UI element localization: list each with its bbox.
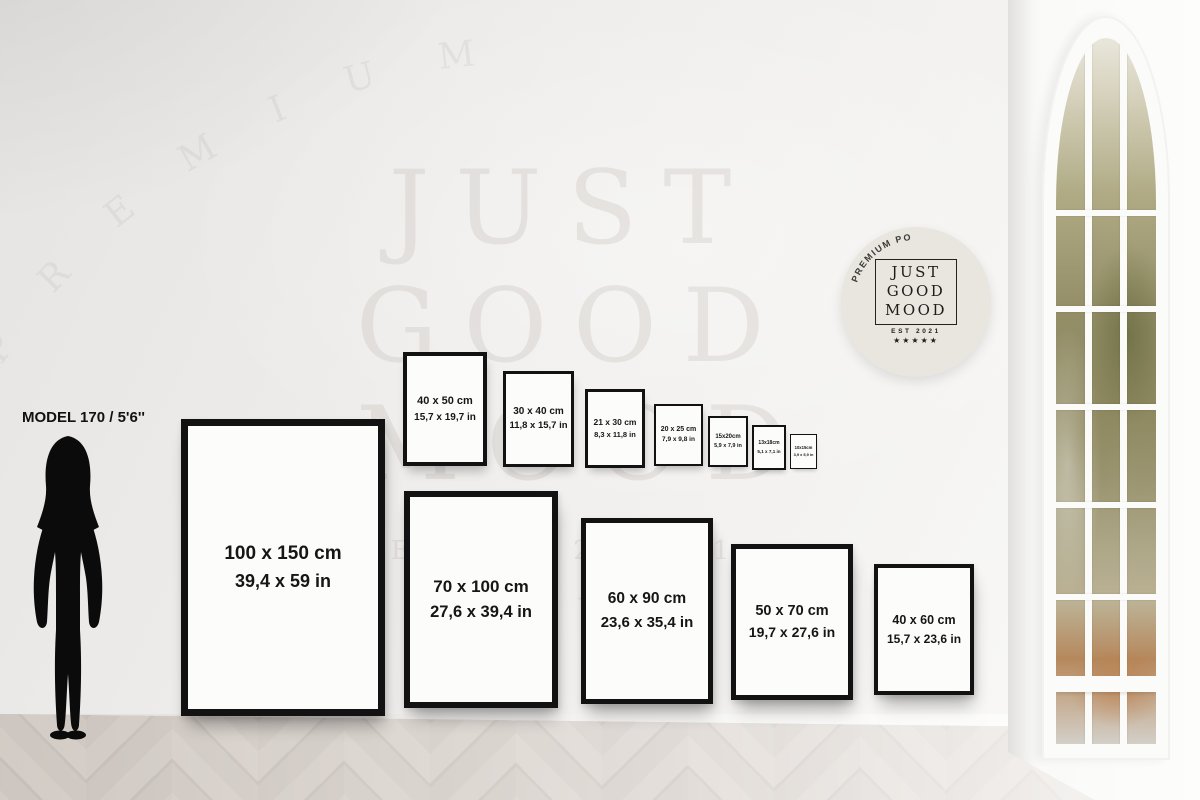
frame-size-in: 19,7 x 27,6 in	[749, 622, 835, 644]
floor-plank	[344, 718, 430, 800]
frame-size-cm: 13x18cm	[758, 440, 779, 448]
watermark-top-text: PREMIUM POSTER	[0, 0, 541, 371]
svg-text:PREMIUM POSTER: PREMIUM POSTER	[0, 0, 541, 371]
frame-size-in: 5,1 x 7,1 in	[757, 448, 780, 455]
badge-line-mood: MOOD	[885, 301, 947, 320]
frame-size-cm: 40 x 60 cm	[892, 611, 955, 630]
watermark-line-good: GOOD	[330, 268, 790, 386]
badge-est: EST 2021	[891, 328, 941, 335]
frame-size-cm: 20 x 25 cm	[661, 425, 696, 436]
frame-size-cm: 40 x 50 cm	[417, 393, 473, 410]
window-sill	[1056, 676, 1156, 692]
frame-30x40: 30 x 40 cm 11,8 x 15,7 in	[503, 371, 574, 467]
frame-10x15: 10x15cm 3,9 x 5,9 in	[790, 434, 817, 469]
frame-size-cm: 50 x 70 cm	[755, 600, 828, 622]
brand-badge: PREMIUM POSTER · HIGH QUALITY PRINTS · F…	[841, 227, 991, 377]
badge-stars: ★★★★★	[893, 336, 939, 345]
window-muntin	[1056, 594, 1156, 600]
person-silhouette	[18, 434, 118, 744]
room-scene: PREMIUM POSTER HIGH QUALITY FREE SHIPPIN…	[0, 0, 1200, 800]
frame-size-in: 23,6 x 35,4 in	[601, 611, 694, 634]
watermark-line-just: JUST	[330, 150, 790, 268]
floor-plank	[688, 722, 774, 800]
frame-50x70: 50 x 70 cm 19,7 x 27,6 in	[731, 544, 853, 700]
frame-size-in: 8,3 x 11,8 in	[594, 429, 636, 441]
floor-plank	[516, 720, 602, 800]
frame-100x150: 100 x 150 cm 39,4 x 59 in	[181, 419, 385, 716]
frame-size-in: 5,9 x 7,9 in	[714, 442, 742, 451]
window-muntin	[1056, 404, 1156, 410]
frame-40x50: 40 x 50 cm 15,7 x 19,7 in	[403, 352, 487, 466]
frame-size-cm: 15x20cm	[715, 433, 740, 442]
wall-corner-shadow	[1008, 0, 1034, 800]
floor-plank	[602, 721, 688, 800]
frame-20x25: 20 x 25 cm 7,9 x 9,8 in	[654, 404, 703, 466]
badge-line-good: GOOD	[885, 282, 947, 301]
frame-size-cm: 70 x 100 cm	[433, 574, 528, 600]
frame-size-in: 3,9 x 5,9 in	[794, 452, 814, 458]
frame-size-in: 7,9 x 9,8 in	[662, 435, 695, 445]
frame-13x18: 13x18cm 5,1 x 7,1 in	[752, 425, 786, 470]
frame-size-cm: 30 x 40 cm	[513, 404, 564, 420]
frame-size-cm: 21 x 30 cm	[593, 416, 636, 429]
badge-logo-box: JUST GOOD MOOD	[875, 259, 957, 326]
floor-plank	[774, 723, 860, 800]
frame-size-in: 15,7 x 23,6 in	[887, 630, 961, 649]
frame-60x90: 60 x 90 cm 23,6 x 35,4 in	[581, 518, 713, 704]
window-glass	[1056, 38, 1156, 744]
frame-size-cm: 100 x 150 cm	[224, 539, 341, 568]
window-muntin	[1056, 502, 1156, 508]
window-muntin	[1085, 38, 1092, 744]
frame-21x30: 21 x 30 cm 8,3 x 11,8 in	[585, 389, 645, 468]
frame-size-in: 27,6 x 39,4 in	[430, 600, 532, 626]
floor-plank	[172, 716, 258, 800]
frame-size-in: 15,7 x 19,7 in	[414, 410, 476, 426]
window-muntin	[1056, 210, 1156, 216]
badge-wordmark: JUST GOOD MOOD EST 2021 ★★★★★	[841, 227, 991, 377]
watermark-stars: ★ ★	[330, 584, 790, 619]
woman-silhouette-graphic	[18, 434, 118, 744]
floor-plank	[860, 725, 946, 800]
frame-size-cm: 60 x 90 cm	[608, 587, 686, 611]
frame-15x20: 15x20cm 5,9 x 7,9 in	[708, 416, 748, 467]
frame-size-in: 39,4 x 59 in	[235, 568, 331, 596]
frame-70x100: 70 x 100 cm 27,6 x 39,4 in	[404, 491, 558, 708]
watermark-est: EST 2021	[330, 536, 790, 566]
frame-40x60: 40 x 60 cm 15,7 x 23,6 in	[874, 564, 974, 695]
badge-line-just: JUST	[885, 263, 947, 282]
model-height-label: MODEL 170 / 5'6''	[22, 409, 145, 426]
floor-plank	[258, 717, 344, 800]
floor-plank	[430, 719, 516, 800]
window-wall	[1008, 0, 1200, 800]
frame-size-in: 11,8 x 15,7 in	[509, 419, 567, 434]
window-muntin	[1120, 38, 1127, 744]
window-muntin	[1056, 306, 1156, 312]
arched-window	[1042, 16, 1170, 760]
